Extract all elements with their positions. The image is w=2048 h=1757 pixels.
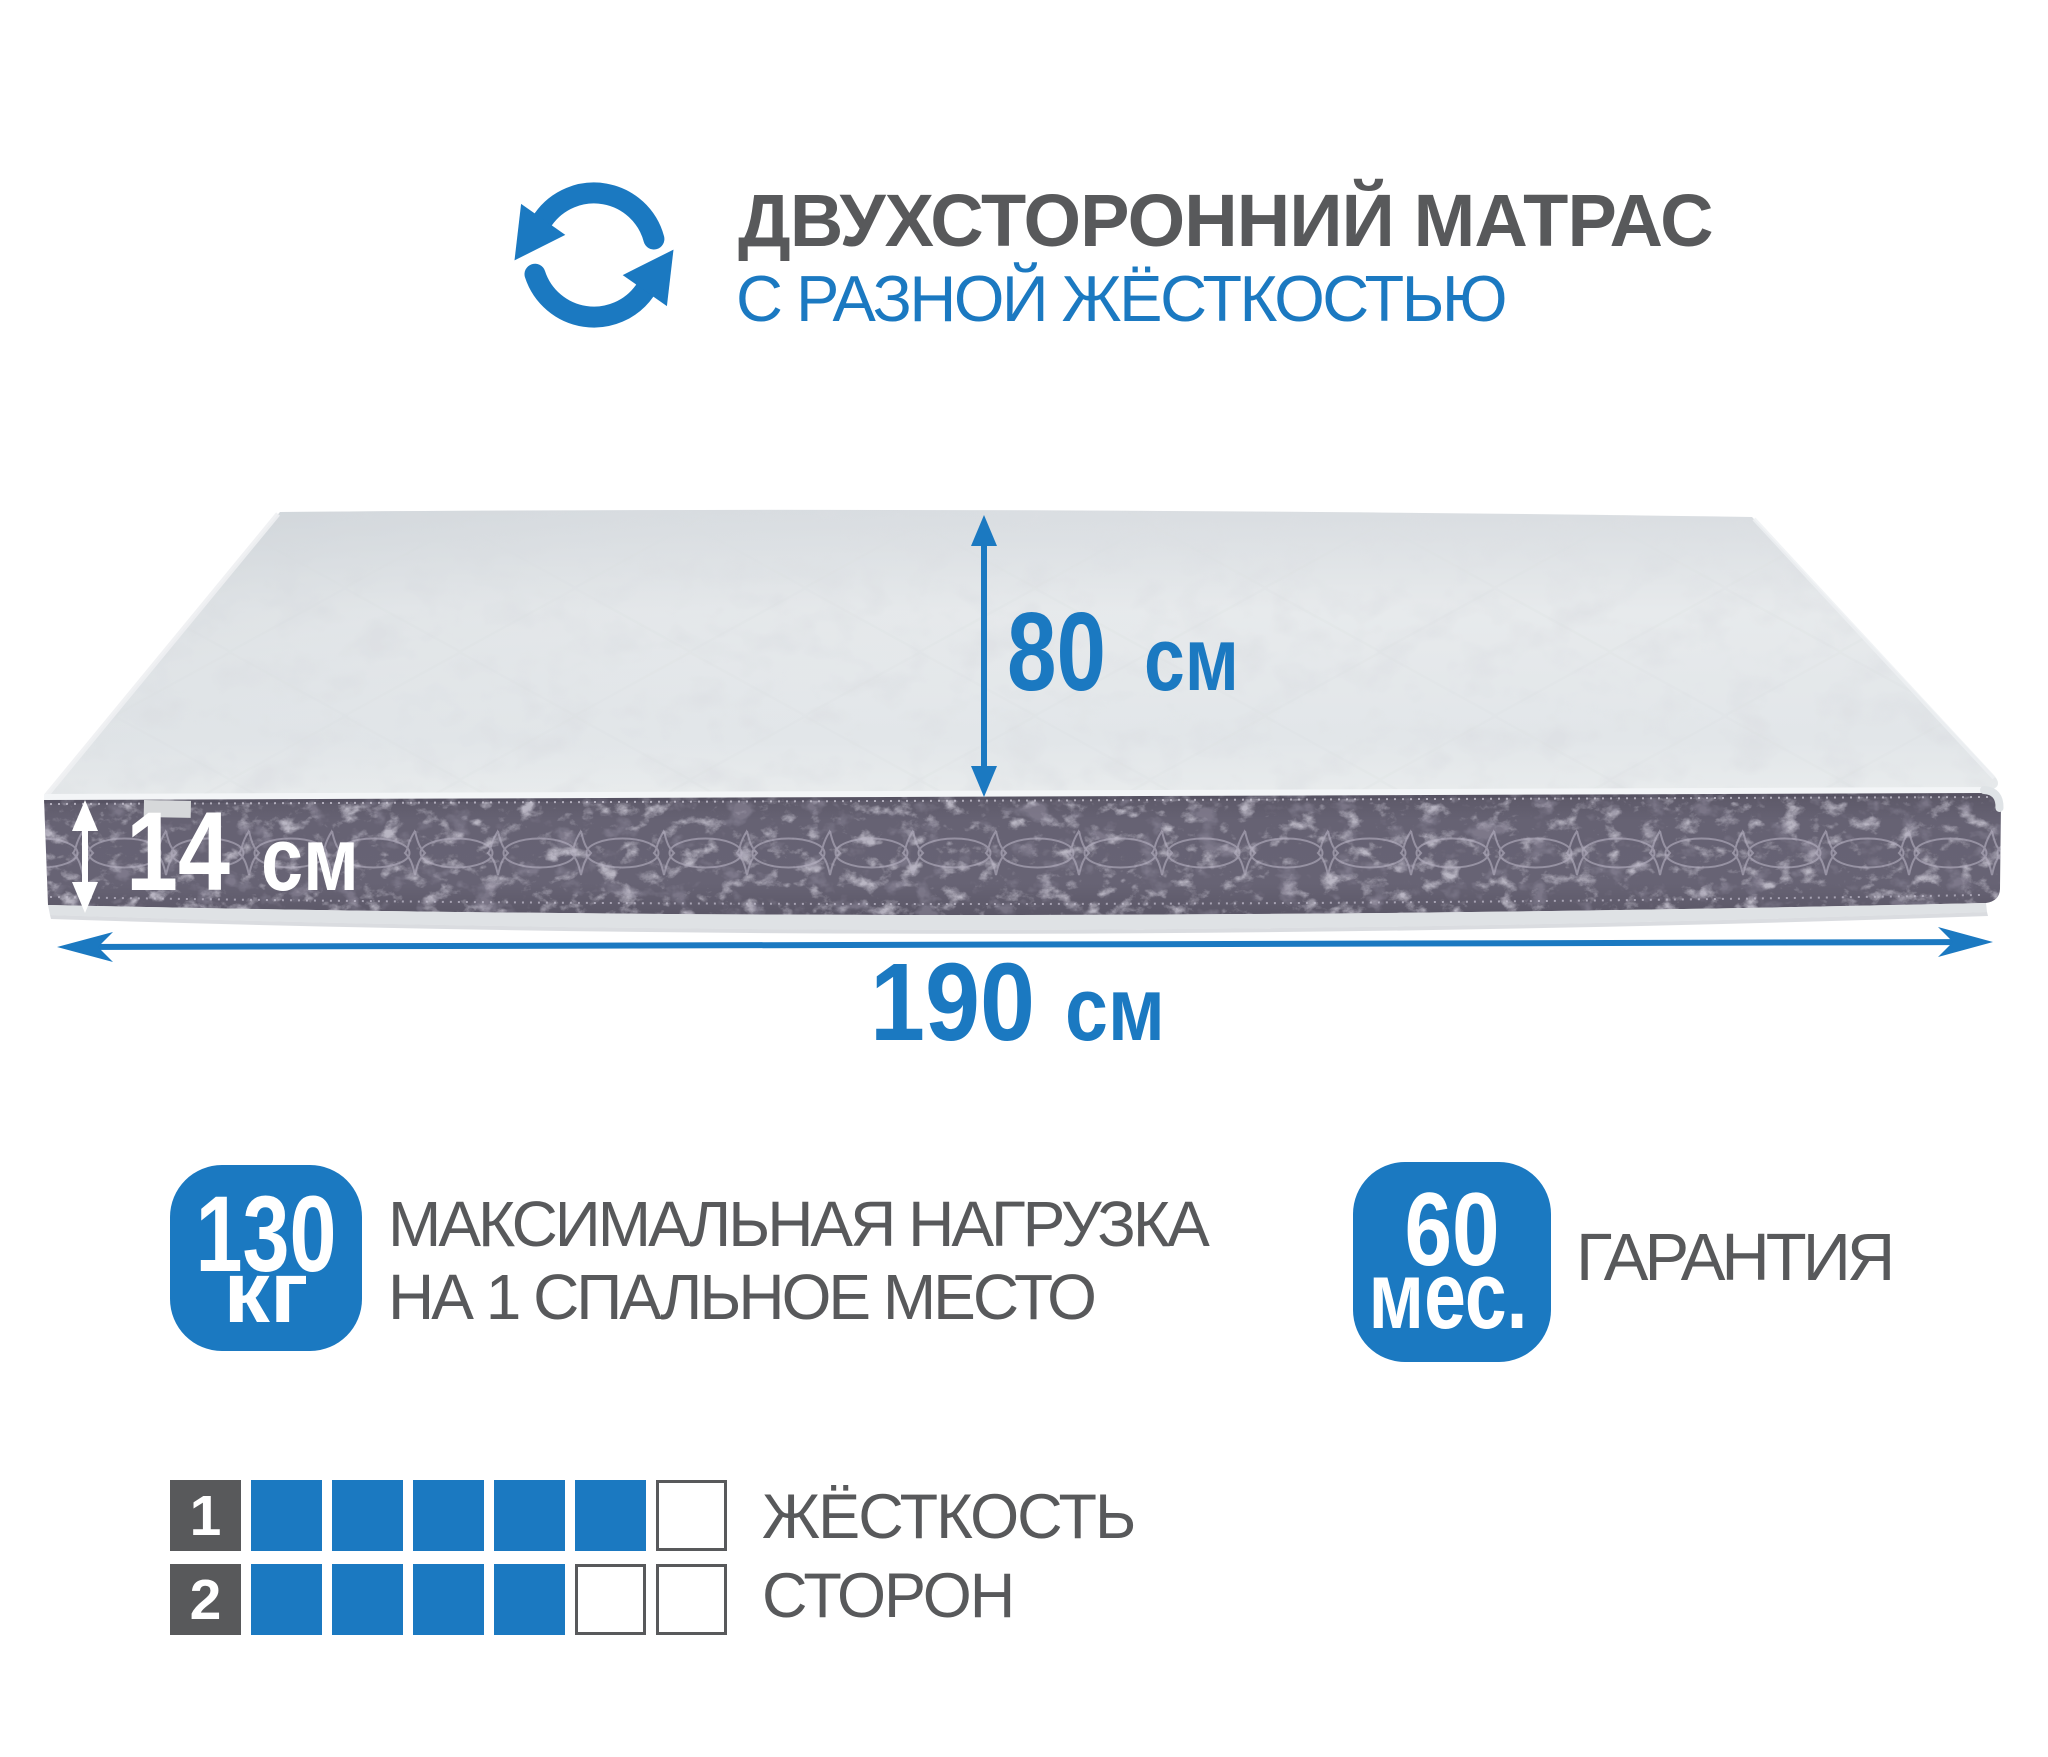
svg-text:190см: 190см — [870, 941, 1165, 1064]
svg-text:кг: кг — [224, 1244, 309, 1341]
svg-text:мес.: мес. — [1369, 1242, 1528, 1349]
